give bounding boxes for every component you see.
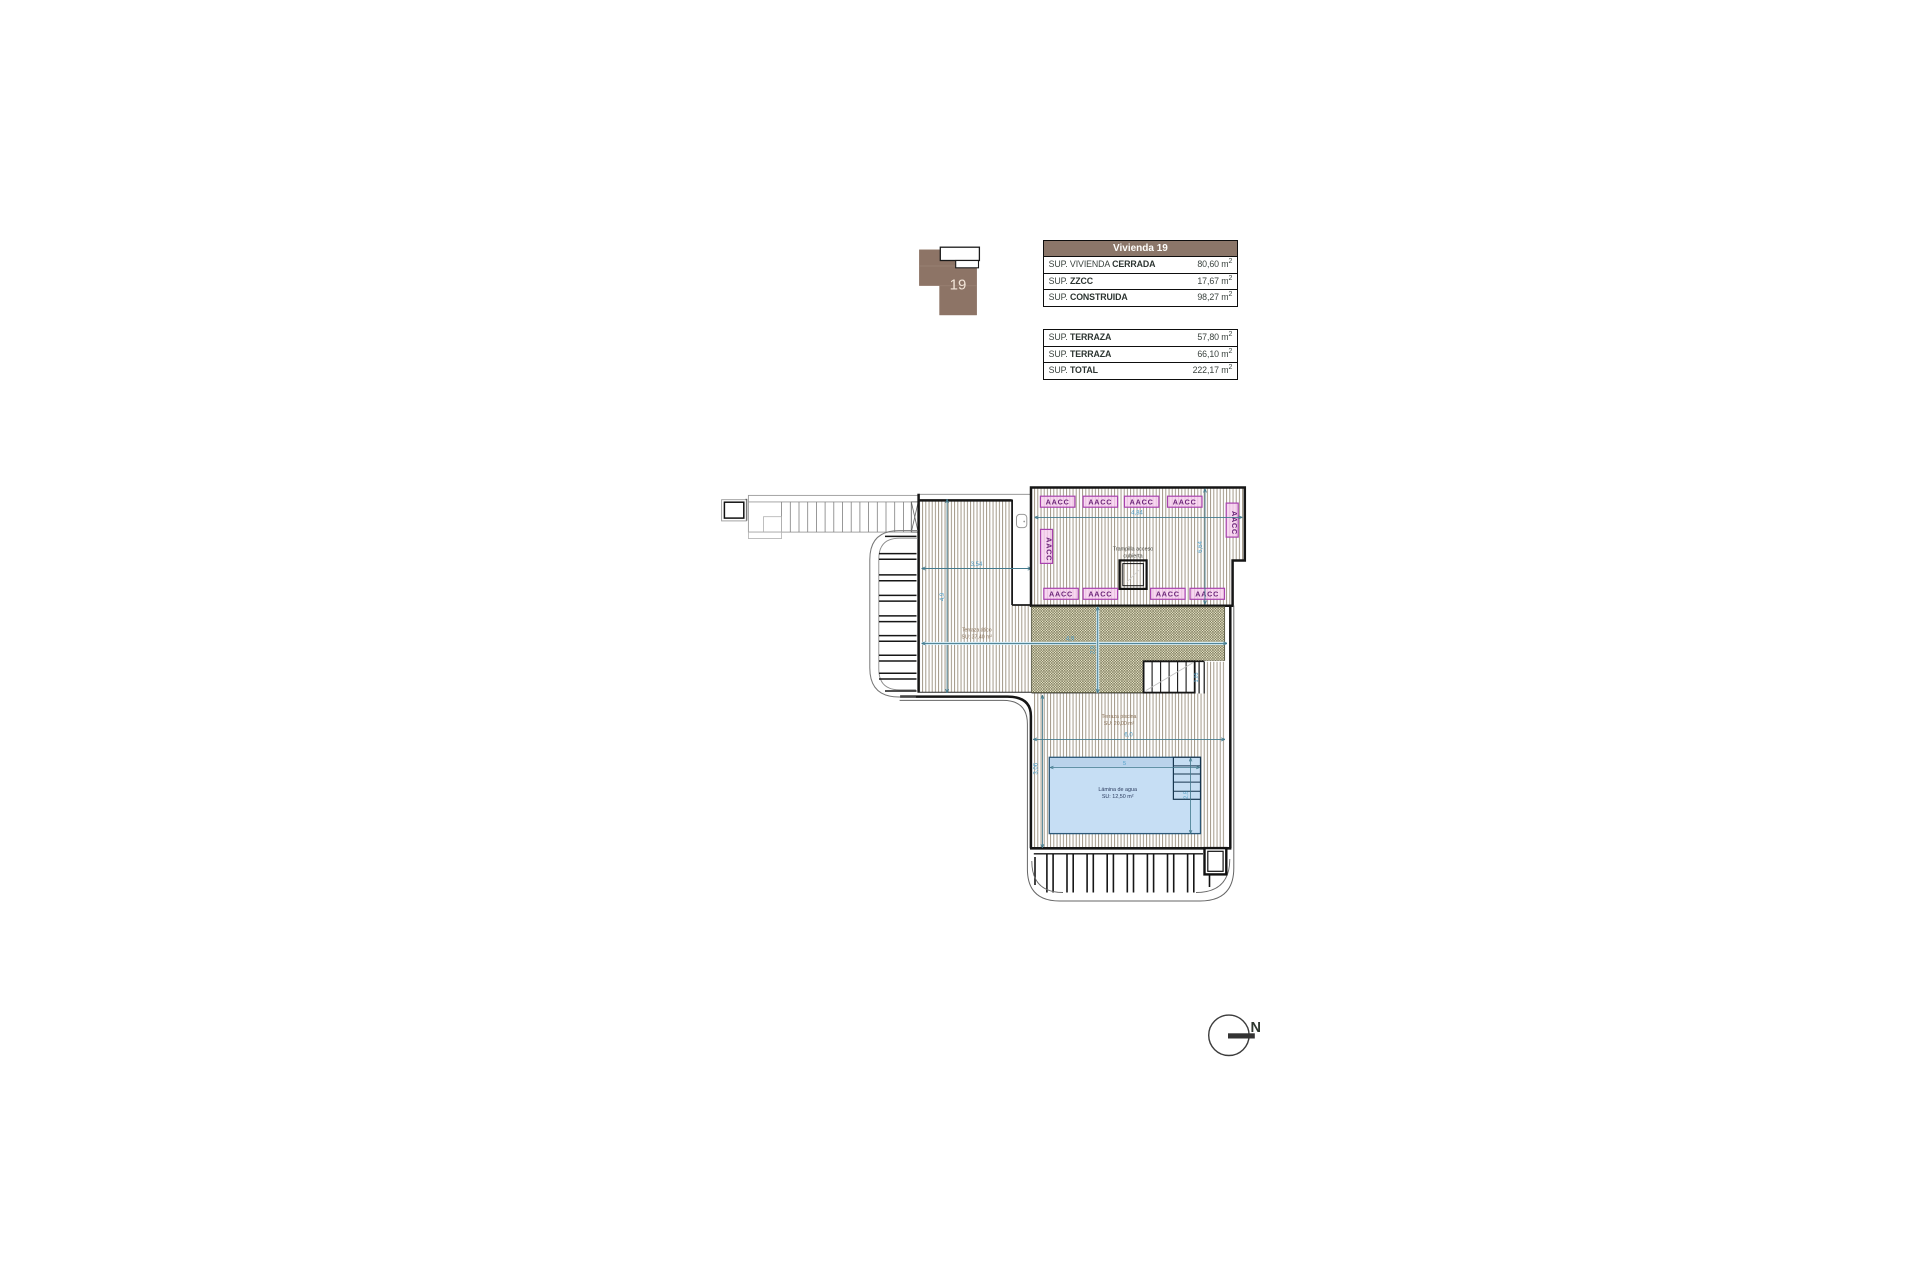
svg-text:AACC: AACC <box>1088 590 1112 599</box>
svg-text:5: 5 <box>1123 761 1126 767</box>
svg-text:Terraza ático: Terraza ático <box>962 628 992 634</box>
svg-text:4,9: 4,9 <box>1066 636 1075 642</box>
svg-text:AACC: AACC <box>1045 537 1054 561</box>
svg-text:19: 19 <box>950 277 967 294</box>
svg-text:AACC: AACC <box>1130 498 1154 507</box>
svg-text:Lámina de agua: Lámina de agua <box>1098 787 1137 793</box>
svg-text:AACC: AACC <box>1230 511 1239 535</box>
svg-text:AACC: AACC <box>1088 498 1112 507</box>
svg-text:AACC: AACC <box>1173 498 1197 507</box>
svg-text:3,54: 3,54 <box>971 562 983 568</box>
svg-text:2,5: 2,5 <box>1183 791 1189 799</box>
svg-text:AACC: AACC <box>1156 590 1180 599</box>
svg-text:Trampilla acceso: Trampilla acceso <box>1113 547 1154 553</box>
svg-text:AACC: AACC <box>1049 590 1073 599</box>
svg-text:N: N <box>1251 1020 1261 1036</box>
svg-text:SU: 12,50 m²: SU: 12,50 m² <box>1102 794 1134 800</box>
svg-text:4,9: 4,9 <box>940 592 946 601</box>
svg-text:SU: 37,40 m²: SU: 37,40 m² <box>962 635 993 641</box>
svg-text:SU: 20,00 m²: SU: 20,00 m² <box>1104 721 1135 727</box>
svg-text:4,84: 4,84 <box>1131 510 1143 516</box>
svg-text:AACC: AACC <box>1046 498 1070 507</box>
svg-text:2,9: 2,9 <box>1091 645 1097 654</box>
svg-text:3,06: 3,06 <box>1033 762 1039 774</box>
svg-text:1,05: 1,05 <box>1194 672 1200 682</box>
svg-text:AACC: AACC <box>1195 590 1219 599</box>
svg-text:6,64: 6,64 <box>1198 541 1204 553</box>
svg-text:Terraza piscina: Terraza piscina <box>1102 714 1137 720</box>
svg-text:cubierta: cubierta <box>1123 553 1142 559</box>
svg-text:6,0: 6,0 <box>1124 732 1133 738</box>
